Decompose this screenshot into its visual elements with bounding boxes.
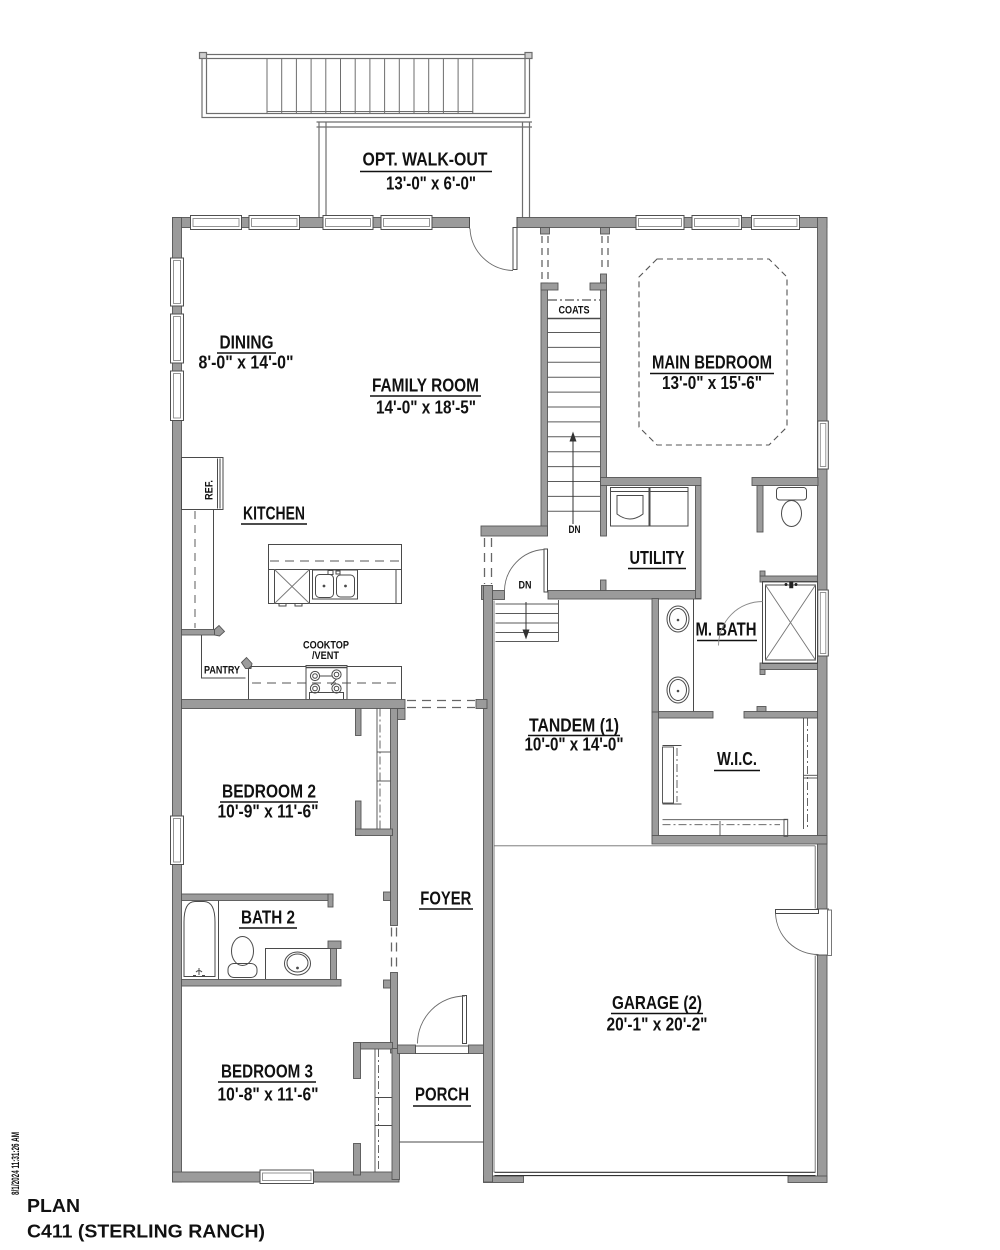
svg-text:GARAGE (2): GARAGE (2) (612, 993, 702, 1013)
svg-text:DN: DN (519, 580, 532, 592)
svg-text:UTILITY: UTILITY (630, 548, 685, 568)
svg-text:10'-0" x 14'-0": 10'-0" x 14'-0" (525, 735, 624, 755)
svg-text:8'-0" x 14'-0": 8'-0" x 14'-0" (199, 353, 294, 373)
svg-text:C411 (STERLING RANCH): C411 (STERLING RANCH) (27, 1222, 265, 1242)
svg-text:13'-0" x 6'-0": 13'-0" x 6'-0" (386, 174, 476, 194)
svg-text:PLAN: PLAN (27, 1196, 80, 1216)
svg-text:BEDROOM 2: BEDROOM 2 (222, 782, 316, 802)
svg-text:DINING: DINING (220, 333, 274, 353)
svg-text:FAMILY ROOM: FAMILY ROOM (372, 376, 479, 396)
svg-text:8/1/2024 11:31:26 AM: 8/1/2024 11:31:26 AM (10, 1132, 22, 1195)
svg-text:PANTRY: PANTRY (204, 665, 241, 677)
svg-text:/VENT: /VENT (312, 650, 339, 662)
svg-text:COATS: COATS (559, 305, 590, 317)
svg-text:BEDROOM 3: BEDROOM 3 (221, 1062, 313, 1082)
svg-text:20'-1" x 20'-2": 20'-1" x 20'-2" (607, 1015, 708, 1035)
svg-text:W.I.C.: W.I.C. (717, 749, 757, 769)
svg-text:OPT. WALK-OUT: OPT. WALK-OUT (363, 150, 488, 170)
svg-text:REF.: REF. (204, 480, 216, 500)
svg-text:TANDEM (1): TANDEM (1) (529, 716, 619, 736)
svg-text:M. BATH: M. BATH (696, 620, 757, 640)
svg-text:13'-0" x 15'-6": 13'-0" x 15'-6" (662, 373, 762, 393)
svg-text:MAIN BEDROOM: MAIN BEDROOM (652, 353, 772, 373)
svg-text:DN: DN (569, 524, 581, 536)
svg-text:BATH 2: BATH 2 (241, 908, 295, 928)
svg-text:PORCH: PORCH (415, 1085, 469, 1105)
svg-text:10'-8" x 11'-6": 10'-8" x 11'-6" (218, 1085, 319, 1105)
svg-text:FOYER: FOYER (420, 889, 471, 909)
svg-text:10'-9" x 11'-6": 10'-9" x 11'-6" (218, 802, 319, 822)
svg-text:14'-0" x 18'-5": 14'-0" x 18'-5" (376, 398, 476, 418)
svg-text:KITCHEN: KITCHEN (243, 504, 305, 524)
